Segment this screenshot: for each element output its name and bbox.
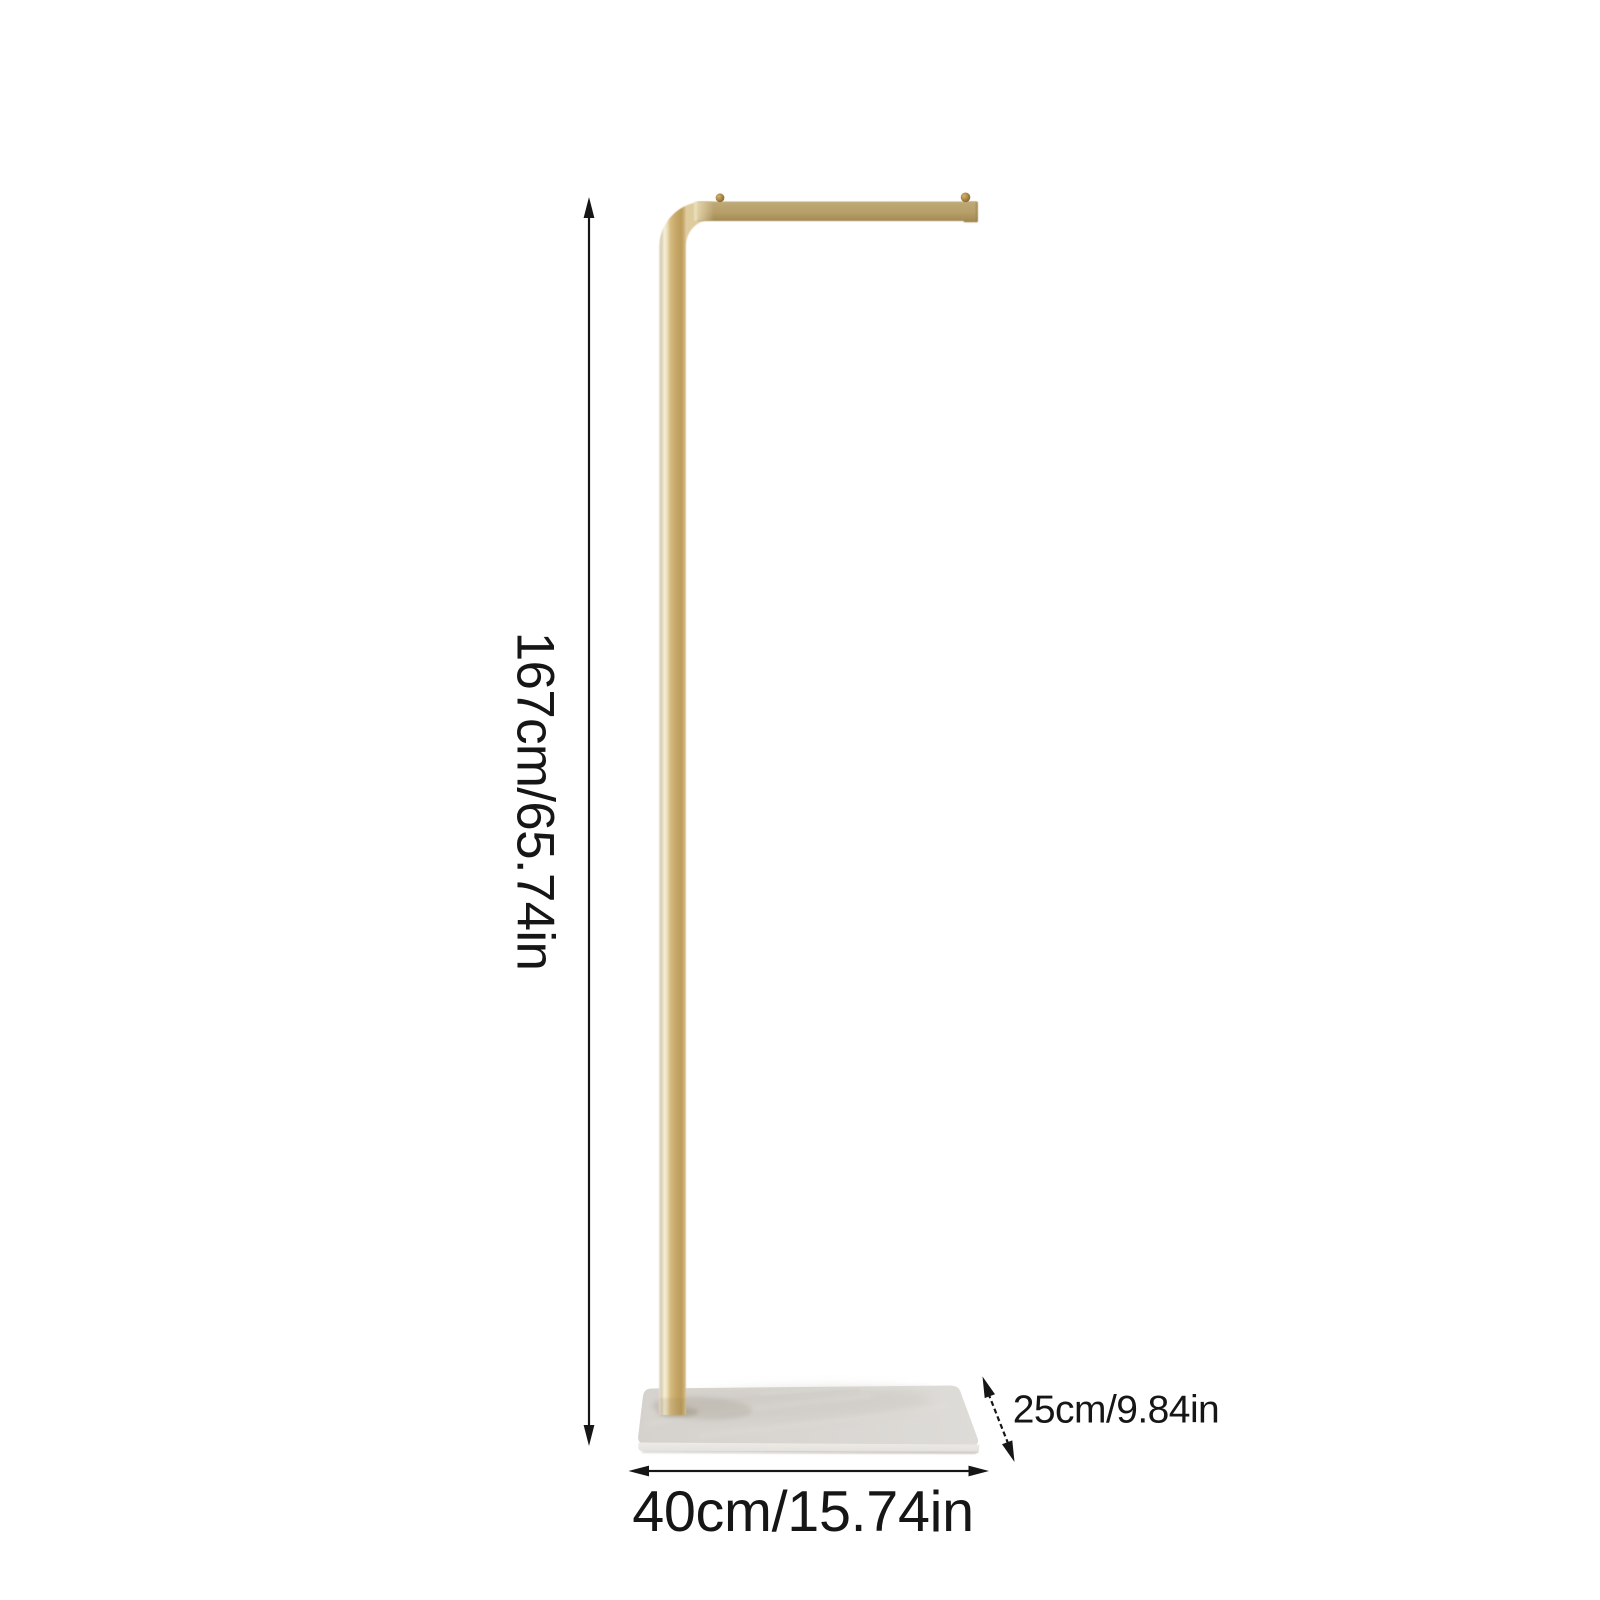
svg-text:167cm/65.74in: 167cm/65.74in bbox=[505, 632, 564, 971]
svg-text:40cm/15.74in: 40cm/15.74in bbox=[632, 1480, 974, 1544]
svg-text:25cm/9.84in: 25cm/9.84in bbox=[1013, 1389, 1219, 1432]
